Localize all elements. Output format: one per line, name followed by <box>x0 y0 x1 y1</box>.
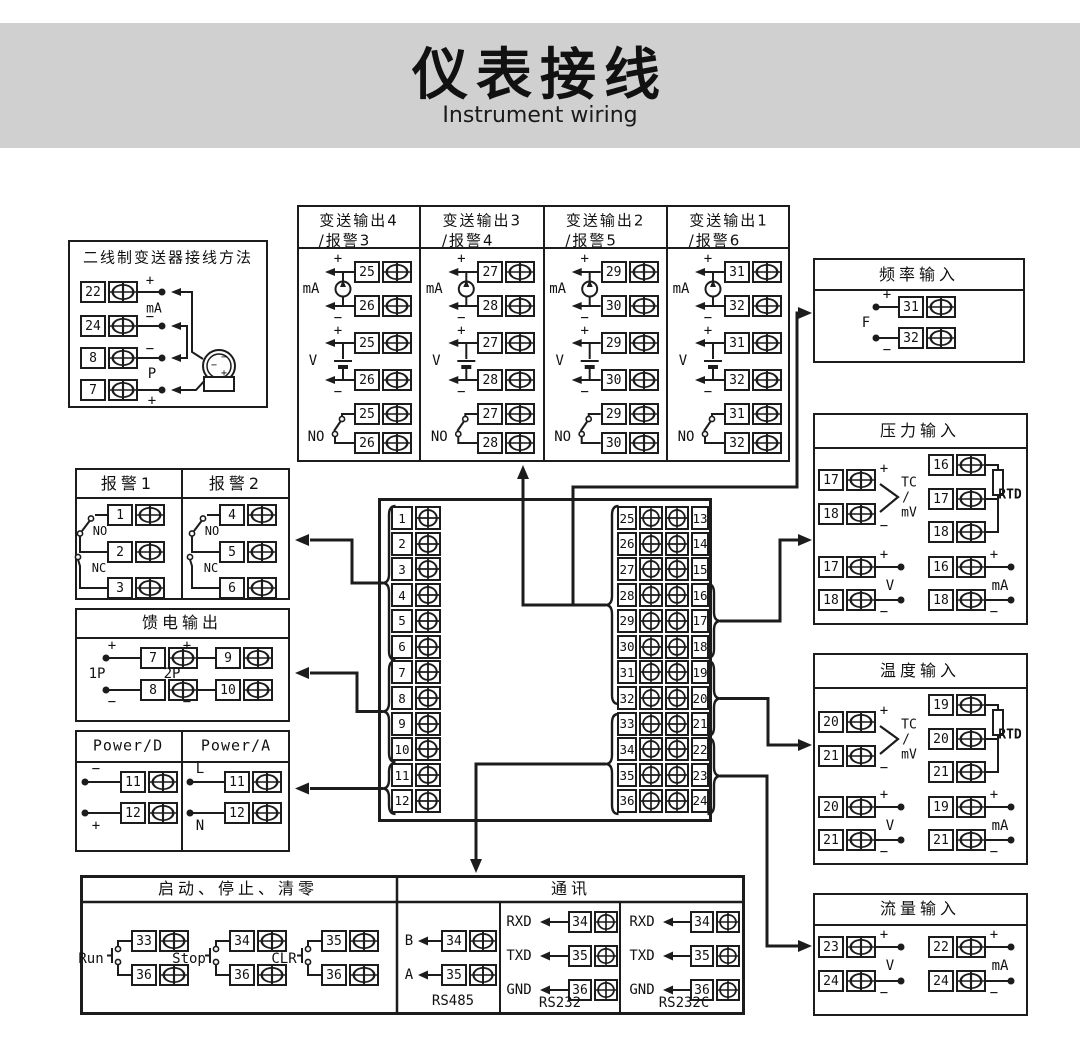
diagram-label: V <box>432 354 440 368</box>
terminal-number: 32 <box>724 295 750 317</box>
screw-terminal-icon <box>629 369 659 391</box>
diagram-label: TXD <box>506 949 531 963</box>
wire-line <box>458 437 477 443</box>
terminal-number: 6 <box>219 577 245 599</box>
screw-terminal-icon <box>629 295 659 317</box>
screw-terminal-icon <box>382 432 412 454</box>
wire-dot-icon <box>1008 597 1015 604</box>
tc-chevron <box>880 726 898 754</box>
screw-terminal-icon <box>257 930 287 952</box>
terminal-number: 11 <box>120 771 146 793</box>
arrow-head-icon <box>798 739 812 751</box>
arrow-head-icon <box>540 986 550 995</box>
diagram-label: + <box>704 252 712 266</box>
screw-terminal-icon <box>639 506 663 530</box>
terminal-number: 19 <box>691 660 709 684</box>
arrow-head-icon <box>325 376 335 384</box>
terminal-number: 29 <box>601 332 627 354</box>
transmit-column-title: 变送输出2 <box>566 214 646 229</box>
arrow-head-icon <box>798 940 812 952</box>
arrow-head-icon <box>517 465 529 479</box>
screw-terminal-icon <box>469 964 497 986</box>
sensor-base-icon <box>204 377 234 391</box>
connector <box>720 540 799 621</box>
diagram-label: mA <box>303 282 320 296</box>
terminal-number: 5 <box>391 609 413 633</box>
terminal-number: 35 <box>568 945 592 967</box>
contact-icon <box>305 959 310 964</box>
diagram-label: NO <box>308 430 325 444</box>
screw-terminal-icon <box>629 332 659 354</box>
screw-terminal-icon <box>665 609 689 633</box>
wire-line <box>192 536 219 552</box>
screw-terminal-icon <box>594 979 618 1001</box>
wire-dot-icon <box>1008 564 1015 571</box>
diagram-label: TXD <box>629 949 654 963</box>
terminal-number: 15 <box>691 557 709 581</box>
arrow-head-icon <box>798 307 812 319</box>
diagram-label: NC <box>204 562 218 574</box>
diagram-label: − <box>990 605 998 619</box>
tc-chevron <box>880 484 898 512</box>
wire-line <box>705 437 724 443</box>
terminal-number: 16 <box>928 454 954 476</box>
connector <box>310 673 383 712</box>
terminal-number: 22 <box>691 737 709 761</box>
screw-terminal-icon <box>956 936 986 958</box>
contact-icon <box>77 531 82 536</box>
wire-dot-icon <box>898 978 905 985</box>
terminal-number: 7 <box>391 660 413 684</box>
diagram-label: NO <box>678 430 695 444</box>
screw-terminal-icon <box>382 295 412 317</box>
diagram-label: + <box>990 928 998 942</box>
screw-terminal-icon <box>505 261 535 283</box>
terminal-number: 1 <box>391 506 413 530</box>
contact-icon <box>187 554 192 559</box>
screw-terminal-icon <box>247 541 277 563</box>
wire-dot-icon <box>873 335 880 342</box>
terminal-number: 25 <box>617 506 637 530</box>
wire-dot-icon <box>898 804 905 811</box>
diagram-label: V <box>679 354 687 368</box>
screw-terminal-icon <box>752 261 782 283</box>
screw-terminal-icon <box>639 532 663 556</box>
diagram-label: + <box>183 639 191 653</box>
screw-terminal-icon <box>415 557 441 581</box>
screw-terminal-icon <box>665 686 689 710</box>
contact-icon <box>115 946 120 951</box>
diagram-label: + <box>580 324 588 338</box>
screw-terminal-icon <box>665 763 689 787</box>
terminal-number: 31 <box>617 660 637 684</box>
terminal-number: 33 <box>131 930 157 952</box>
wire-dot-icon <box>159 355 166 362</box>
arrow-head-icon <box>663 986 673 995</box>
arrow-head-icon <box>418 971 428 980</box>
diagram-label: GND <box>506 983 531 997</box>
screw-terminal-icon <box>639 635 663 659</box>
alarm2-title: 报警2 <box>209 476 263 492</box>
screw-terminal-icon <box>665 635 689 659</box>
screw-terminal-icon <box>752 295 782 317</box>
terminal-number: 19 <box>928 694 954 716</box>
transmit-column-subtitle: /报警3 <box>319 234 372 249</box>
diagram-label: NC <box>92 562 106 574</box>
terminal-number: 32 <box>898 327 924 349</box>
screw-terminal-icon <box>415 712 441 736</box>
diagram-label: + <box>990 548 998 562</box>
diagram-label: Stop <box>172 952 206 966</box>
diagram-label: − <box>211 361 217 371</box>
connector <box>310 540 383 583</box>
wire-dot-icon <box>103 655 110 662</box>
terminal-number: 36 <box>229 964 255 986</box>
screw-terminal-icon <box>247 577 277 599</box>
arrow-head-icon <box>448 268 458 276</box>
wire-line <box>581 422 588 432</box>
arrow-head-icon <box>448 376 458 384</box>
screw-terminal-icon <box>846 970 876 992</box>
diagram-label: + <box>880 928 888 942</box>
screw-terminal-icon <box>108 281 138 303</box>
wire-line <box>465 414 477 416</box>
diagram-label: + <box>880 788 888 802</box>
diagram-label: − <box>990 986 998 1000</box>
terminal-number: 20 <box>691 686 709 710</box>
wire-dot-icon <box>159 387 166 394</box>
screw-terminal-icon <box>956 556 986 578</box>
wire-line <box>179 378 207 390</box>
diagram-label: NO <box>205 525 219 537</box>
screw-terminal-icon <box>956 761 986 783</box>
diagram-label: V <box>886 959 894 973</box>
diagram-label: TC <box>901 719 917 732</box>
screw-terminal-icon <box>594 911 618 933</box>
wire-dot-icon <box>159 289 166 296</box>
screw-terminal-icon <box>639 557 663 581</box>
terminal-number: 34 <box>441 930 467 952</box>
terminal-number: 6 <box>391 635 413 659</box>
wire-dot-icon <box>1008 804 1015 811</box>
wire-line <box>342 414 354 416</box>
screw-terminal-icon <box>639 660 663 684</box>
screw-terminal-icon <box>415 506 441 530</box>
brace-icon <box>708 584 721 658</box>
screw-terminal-icon <box>415 660 441 684</box>
screw-terminal-icon <box>148 802 178 824</box>
diagram-label: − <box>580 385 588 399</box>
screw-terminal-icon <box>846 589 876 611</box>
wire-dot-icon <box>898 944 905 951</box>
contact-icon <box>200 516 205 521</box>
terminal-number: 12 <box>224 802 250 824</box>
terminal-number: 26 <box>354 295 380 317</box>
diagram-label: NO <box>554 430 571 444</box>
diagram-label: − <box>880 519 888 533</box>
diagram-label: + <box>457 252 465 266</box>
terminal-number: 33 <box>617 712 637 736</box>
wire-dot-icon <box>873 304 880 311</box>
screw-terminal-icon <box>505 295 535 317</box>
terminal-number: 18 <box>928 521 954 543</box>
wire-dot-icon <box>1008 944 1015 951</box>
screw-terminal-icon <box>135 577 165 599</box>
diagram-label: − <box>334 385 342 399</box>
screw-terminal-icon <box>505 403 535 425</box>
arrow-head-icon <box>295 534 309 546</box>
diagram-label: − <box>183 695 191 709</box>
contact-icon <box>456 431 461 436</box>
screw-terminal-icon <box>846 829 876 851</box>
wire-dot-icon <box>82 779 89 786</box>
diagram-label: − <box>880 845 888 859</box>
screw-terminal-icon <box>926 296 956 318</box>
terminal-number: 3 <box>391 557 413 581</box>
terminal-number: 25 <box>354 332 380 354</box>
screw-terminal-icon <box>382 403 412 425</box>
screw-terminal-icon <box>639 712 663 736</box>
terminal-number: 9 <box>215 647 241 669</box>
screw-terminal-icon <box>148 771 178 793</box>
pressure-title: 压力输入 <box>880 423 960 439</box>
screw-terminal-icon <box>108 347 138 369</box>
screw-terminal-icon <box>243 679 273 701</box>
terminal-number: 35 <box>617 763 637 787</box>
comm-standard-label: RS485 <box>432 994 474 1008</box>
diagram-label: + <box>334 252 342 266</box>
contact-icon <box>88 516 93 521</box>
terminal-number: 25 <box>354 403 380 425</box>
arrow-head-icon <box>470 859 482 873</box>
terminal-number: 10 <box>391 737 413 761</box>
diagram-label: + <box>704 324 712 338</box>
terminal-number: 5 <box>219 541 245 563</box>
terminal-number: 8 <box>140 679 166 701</box>
screw-terminal-icon <box>665 737 689 761</box>
diagram-label: mA <box>992 819 1009 833</box>
page-title: 仪表接线 <box>412 48 668 104</box>
contact-icon <box>586 416 591 421</box>
diagram-label: / <box>902 492 910 505</box>
wire-line <box>80 536 107 552</box>
screw-terminal-icon <box>415 583 441 607</box>
diagram-label: + <box>221 369 227 379</box>
contact-icon <box>339 416 344 421</box>
arrow-head-icon <box>325 339 335 347</box>
contact-icon <box>579 431 584 436</box>
transmit-column-title: 变送输出3 <box>443 214 523 229</box>
screw-terminal-icon <box>159 930 189 952</box>
diagram-label: − <box>880 986 888 1000</box>
wire-line <box>986 495 998 532</box>
diagram-label: NO <box>431 430 448 444</box>
diagram-label: CLR <box>271 952 296 966</box>
arrow-head-icon <box>540 918 550 927</box>
terminal-number: 23 <box>818 936 844 958</box>
screw-terminal-icon <box>665 583 689 607</box>
screw-terminal-icon <box>846 711 876 733</box>
diagram-label: TC <box>901 477 917 490</box>
wire-dot-icon <box>187 779 194 786</box>
terminal-number: 28 <box>477 432 503 454</box>
diagram-label: mA <box>426 282 443 296</box>
terminal-number: 11 <box>224 771 250 793</box>
screw-terminal-icon <box>846 556 876 578</box>
terminal-number: 16 <box>928 556 954 578</box>
arrow-head-icon <box>663 918 673 927</box>
two-wire-title: 二线制变送器接线方法 <box>83 251 253 266</box>
diagram-label: mA <box>992 959 1009 973</box>
wire-dot-icon <box>898 837 905 844</box>
terminal-number: 7 <box>80 379 106 401</box>
terminal-number: 17 <box>818 556 844 578</box>
diagram-label: + <box>108 639 116 653</box>
contact-icon <box>75 554 80 559</box>
terminal-number: 28 <box>477 295 503 317</box>
terminal-number: 31 <box>724 332 750 354</box>
screw-terminal-icon <box>956 694 986 716</box>
terminal-number: 16 <box>691 583 709 607</box>
diagram-label: + <box>990 788 998 802</box>
screw-terminal-icon <box>639 583 663 607</box>
screw-terminal-icon <box>716 945 740 967</box>
diagram-label: mA <box>992 579 1009 593</box>
screw-terminal-icon <box>956 454 986 476</box>
diagram-label: + <box>880 462 888 476</box>
connector <box>720 699 799 746</box>
screw-terminal-icon <box>252 771 282 793</box>
diagram-label: A <box>405 968 413 982</box>
terminal-number: 2 <box>107 541 133 563</box>
wire-dot-icon <box>159 323 166 330</box>
terminal-number: 36 <box>131 964 157 986</box>
terminal-number: 30 <box>601 369 627 391</box>
terminal-number: 3 <box>107 577 133 599</box>
terminal-number: 22 <box>928 936 954 958</box>
diagram-label: N <box>196 819 204 833</box>
screw-terminal-icon <box>415 532 441 556</box>
arrow-head-icon <box>572 339 582 347</box>
terminal-number: 34 <box>617 737 637 761</box>
screw-terminal-icon <box>594 945 618 967</box>
screw-terminal-icon <box>956 589 986 611</box>
wire-line <box>335 437 354 443</box>
diagram-label: − <box>457 385 465 399</box>
terminal-number: 31 <box>724 403 750 425</box>
arrow-head-icon <box>448 302 458 310</box>
diagram-label: NO <box>93 525 107 537</box>
terminal-number: 34 <box>690 911 714 933</box>
screw-terminal-icon <box>135 541 165 563</box>
diagram-label: − <box>146 342 154 356</box>
terminal-number: 21 <box>928 829 954 851</box>
screw-terminal-icon <box>415 789 441 813</box>
screw-terminal-icon <box>752 369 782 391</box>
terminal-number: 30 <box>617 635 637 659</box>
diagram-label: P <box>148 367 156 381</box>
terminal-number: 31 <box>724 261 750 283</box>
contact-icon <box>189 531 194 536</box>
wire-line <box>118 965 131 975</box>
screw-terminal-icon <box>629 403 659 425</box>
terminal-number: 1 <box>107 504 133 526</box>
power-d-title: Power/D <box>93 739 163 754</box>
wire-dot-icon <box>1008 978 1015 985</box>
terminal-number: 36 <box>321 964 347 986</box>
terminal-number: 18 <box>818 589 844 611</box>
screw-terminal-icon <box>956 521 986 543</box>
screw-terminal-icon <box>956 728 986 750</box>
connector <box>476 764 606 860</box>
arrow-head-icon <box>295 667 309 679</box>
terminal-number: 20 <box>818 711 844 733</box>
wire-line <box>582 437 601 443</box>
terminal-number: 24 <box>818 970 844 992</box>
transmit-column-title: 变送输出4 <box>319 214 399 229</box>
arrow-head-icon <box>572 268 582 276</box>
diagram-label: L <box>196 762 204 776</box>
diagram-label: + <box>883 288 891 302</box>
screw-terminal-icon <box>956 796 986 818</box>
screw-terminal-icon <box>752 332 782 354</box>
arrow-head-icon <box>695 302 705 310</box>
screw-terminal-icon <box>108 379 138 401</box>
diagram-label: GND <box>629 983 654 997</box>
arrow-head-icon <box>448 339 458 347</box>
diagram-label: + <box>880 548 888 562</box>
screw-terminal-icon <box>382 332 412 354</box>
screw-terminal-icon <box>716 979 740 1001</box>
diagram-label: V <box>309 354 317 368</box>
wire-line <box>179 326 187 358</box>
transmit-column-subtitle: /报警4 <box>442 234 495 249</box>
terminal-number: 17 <box>691 609 709 633</box>
arrow-head-icon <box>663 952 673 961</box>
diagram-label: + <box>457 324 465 338</box>
diagram-label: + <box>146 274 154 288</box>
screw-terminal-icon <box>956 829 986 851</box>
terminal-number: 18 <box>928 589 954 611</box>
wire-dot-icon <box>103 687 110 694</box>
terminal-number: 34 <box>229 930 255 952</box>
screw-terminal-icon <box>629 261 659 283</box>
arrow-head-icon <box>695 339 705 347</box>
terminal-number: 30 <box>601 432 627 454</box>
terminal-number: 32 <box>617 686 637 710</box>
comm-standard-label: RS232 <box>539 996 581 1010</box>
terminal-number: 35 <box>321 930 347 952</box>
diagram-label: − <box>221 353 227 363</box>
terminal-number: 7 <box>140 647 166 669</box>
diagram-label: + <box>334 324 342 338</box>
diagram-label: mA <box>673 282 690 296</box>
diagram-label: − <box>704 385 712 399</box>
screw-terminal-icon <box>639 789 663 813</box>
terminal-number: 31 <box>898 296 924 318</box>
contact-icon <box>709 416 714 421</box>
terminal-number: 11 <box>391 763 413 787</box>
contact-icon <box>115 959 120 964</box>
terminal-number: 27 <box>617 557 637 581</box>
screw-terminal-icon <box>415 737 441 761</box>
alarm1-title: 报警1 <box>101 476 155 492</box>
transmit-column-subtitle: /报警6 <box>689 234 742 249</box>
terminal-number: 21 <box>928 761 954 783</box>
screw-terminal-icon <box>665 506 689 530</box>
arrow-head-icon <box>325 302 335 310</box>
screw-terminal-icon <box>639 763 663 787</box>
